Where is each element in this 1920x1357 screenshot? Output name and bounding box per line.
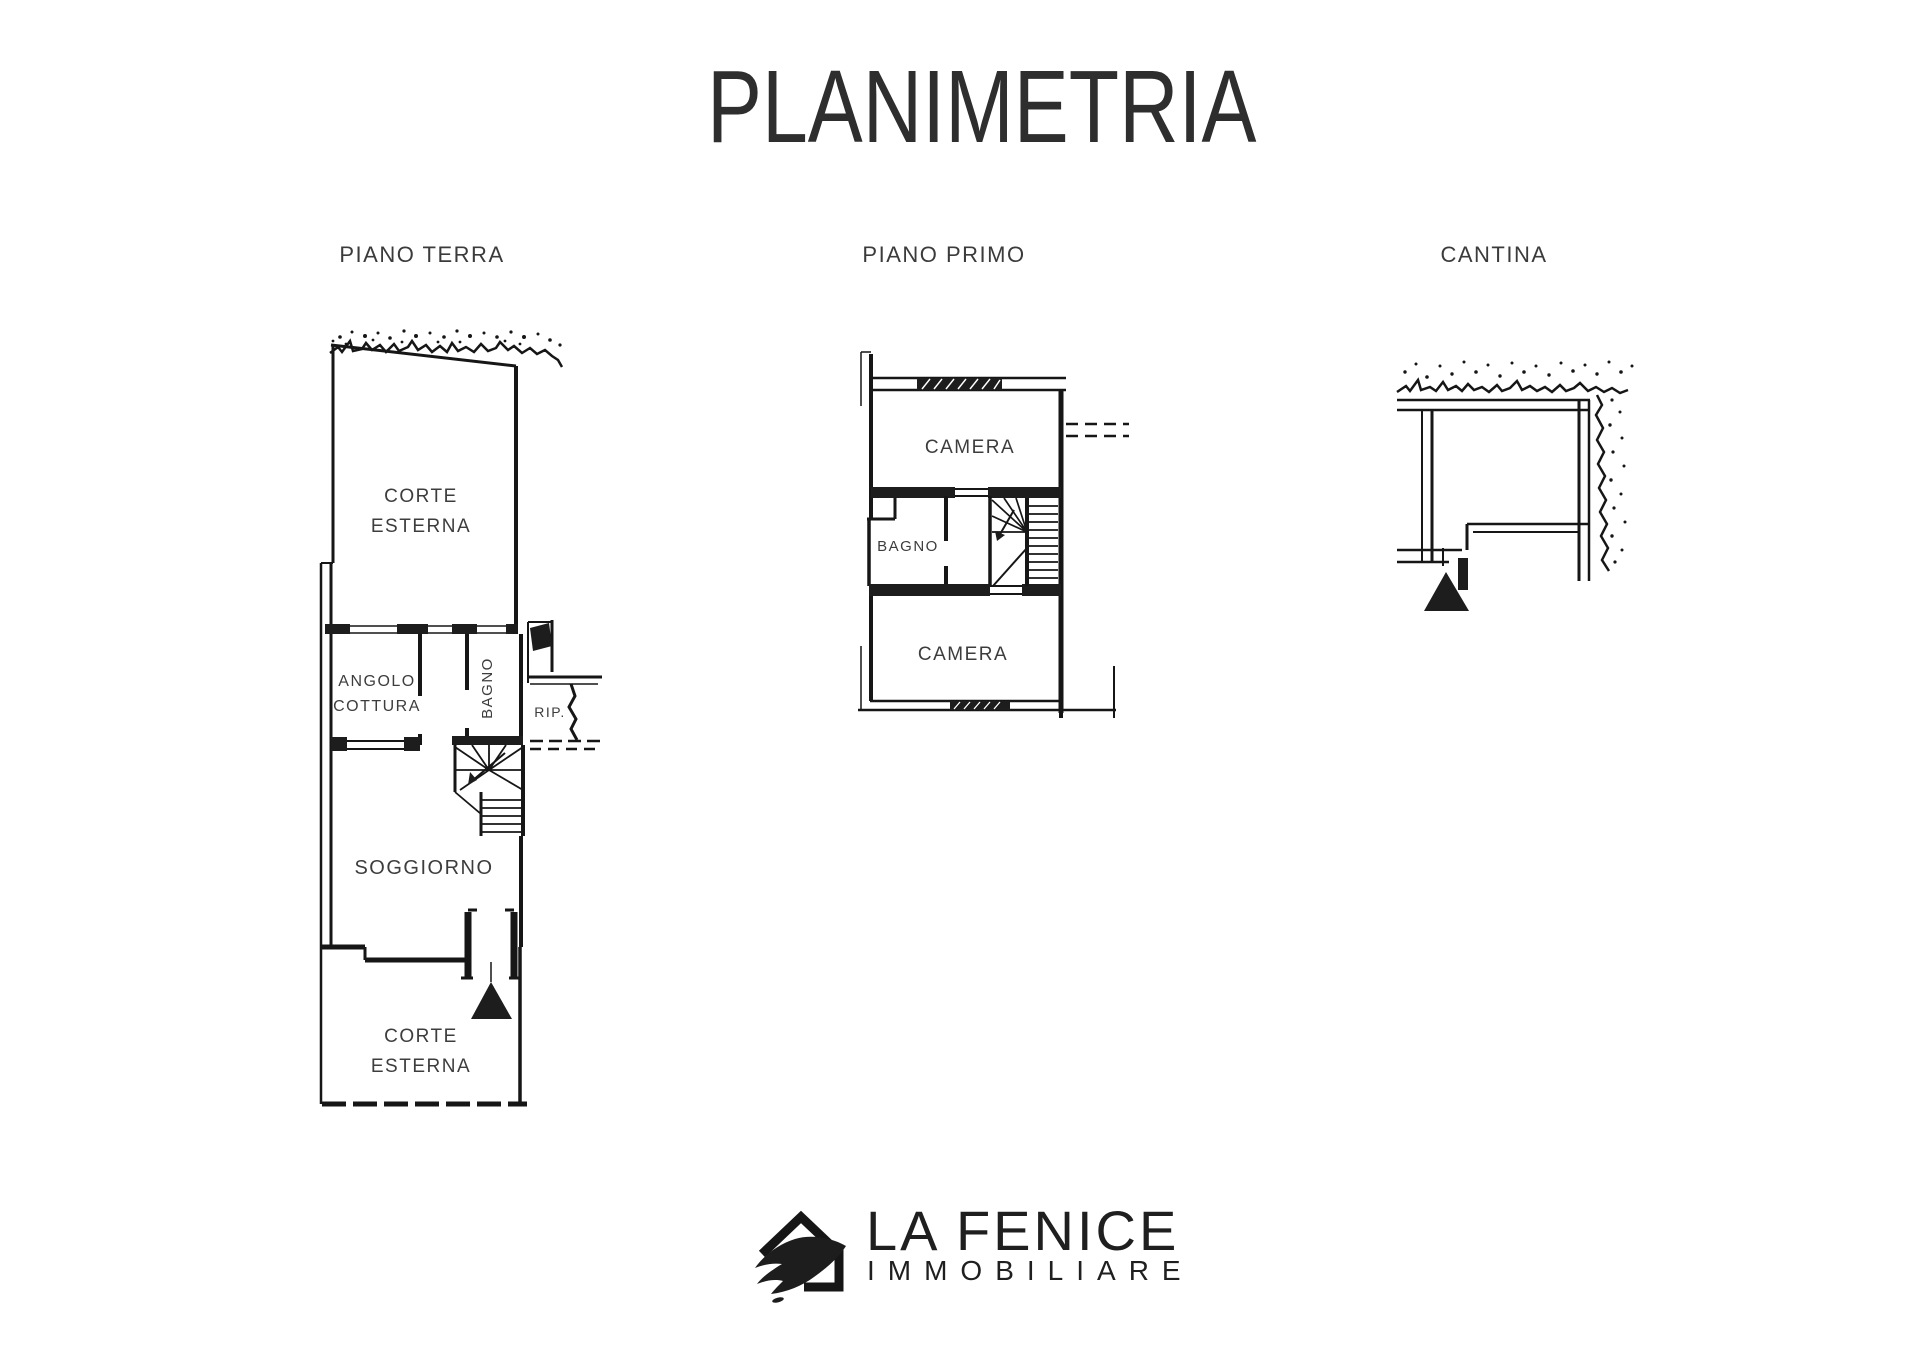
floor-label-piano-primo: PIANO PRIMO	[862, 242, 1025, 268]
room-label-corte-esterna-bottom-1: CORTE	[384, 1026, 458, 1047]
soggiorno-walls	[321, 836, 521, 960]
room-label-soggiorno: SOGGIORNO	[354, 857, 493, 879]
angolo-cottura-walls	[331, 634, 420, 751]
room-label-corte-esterna-top-1: CORTE	[384, 486, 458, 507]
room-label-bagno-first: BAGNO	[877, 538, 939, 555]
cellar-plan	[1390, 350, 1645, 620]
logo-name: LA FENICE	[866, 1203, 1179, 1259]
room-label-rip: RIP.	[534, 704, 565, 720]
north-facade-wall	[325, 624, 518, 634]
cellar-walls	[1397, 400, 1590, 590]
room-label-corte-esterna-top-2: ESTERNA	[371, 516, 471, 537]
room-label-camera-bottom: CAMERA	[918, 644, 1008, 665]
page-title-wrap: PLANIMETRIA	[707, 55, 1394, 158]
ground-floor-plan: CORTE ESTERNA ANGOLO COTTURA	[300, 320, 620, 1120]
logo-subname: IMMOBILIARE	[867, 1257, 1194, 1285]
room-label-angolo-1: ANGOLO	[338, 673, 415, 690]
staircase-ground	[452, 736, 523, 836]
room-label-angolo-2: COTTURA	[333, 698, 421, 715]
staircase-first	[992, 498, 1058, 586]
external-stair	[528, 620, 552, 683]
entrance-marker-icon	[471, 982, 512, 1019]
mid-wall-lower	[869, 584, 1061, 596]
first-floor-plan: CAMERA BAGNO CAMERA	[845, 345, 1145, 730]
logo-house-wing-icon	[748, 1206, 850, 1306]
exterior-left-wall	[321, 563, 333, 1104]
bagno-first-walls	[946, 496, 990, 590]
room-label-corte-esterna-bottom-2: ESTERNA	[371, 1056, 471, 1077]
floor-label-piano-terra: PIANO TERRA	[339, 242, 504, 268]
balcony-dashes	[1066, 424, 1129, 436]
page-title: PLANIMETRIA	[707, 55, 1256, 158]
floor-plan-sheet: PLANIMETRIA PIANO TERRA PIANO PRIMO CANT…	[0, 0, 1920, 1357]
mid-wall-upper	[871, 487, 1061, 498]
top-window-hatch	[917, 378, 1002, 390]
entrance-bay	[461, 910, 521, 982]
room-label-bagno-ground: BAGNO	[479, 657, 496, 719]
floor-label-cantina: CANTINA	[1440, 242, 1547, 268]
bottom-window-hatch	[950, 701, 1010, 710]
room-label-camera-top: CAMERA	[925, 437, 1015, 458]
